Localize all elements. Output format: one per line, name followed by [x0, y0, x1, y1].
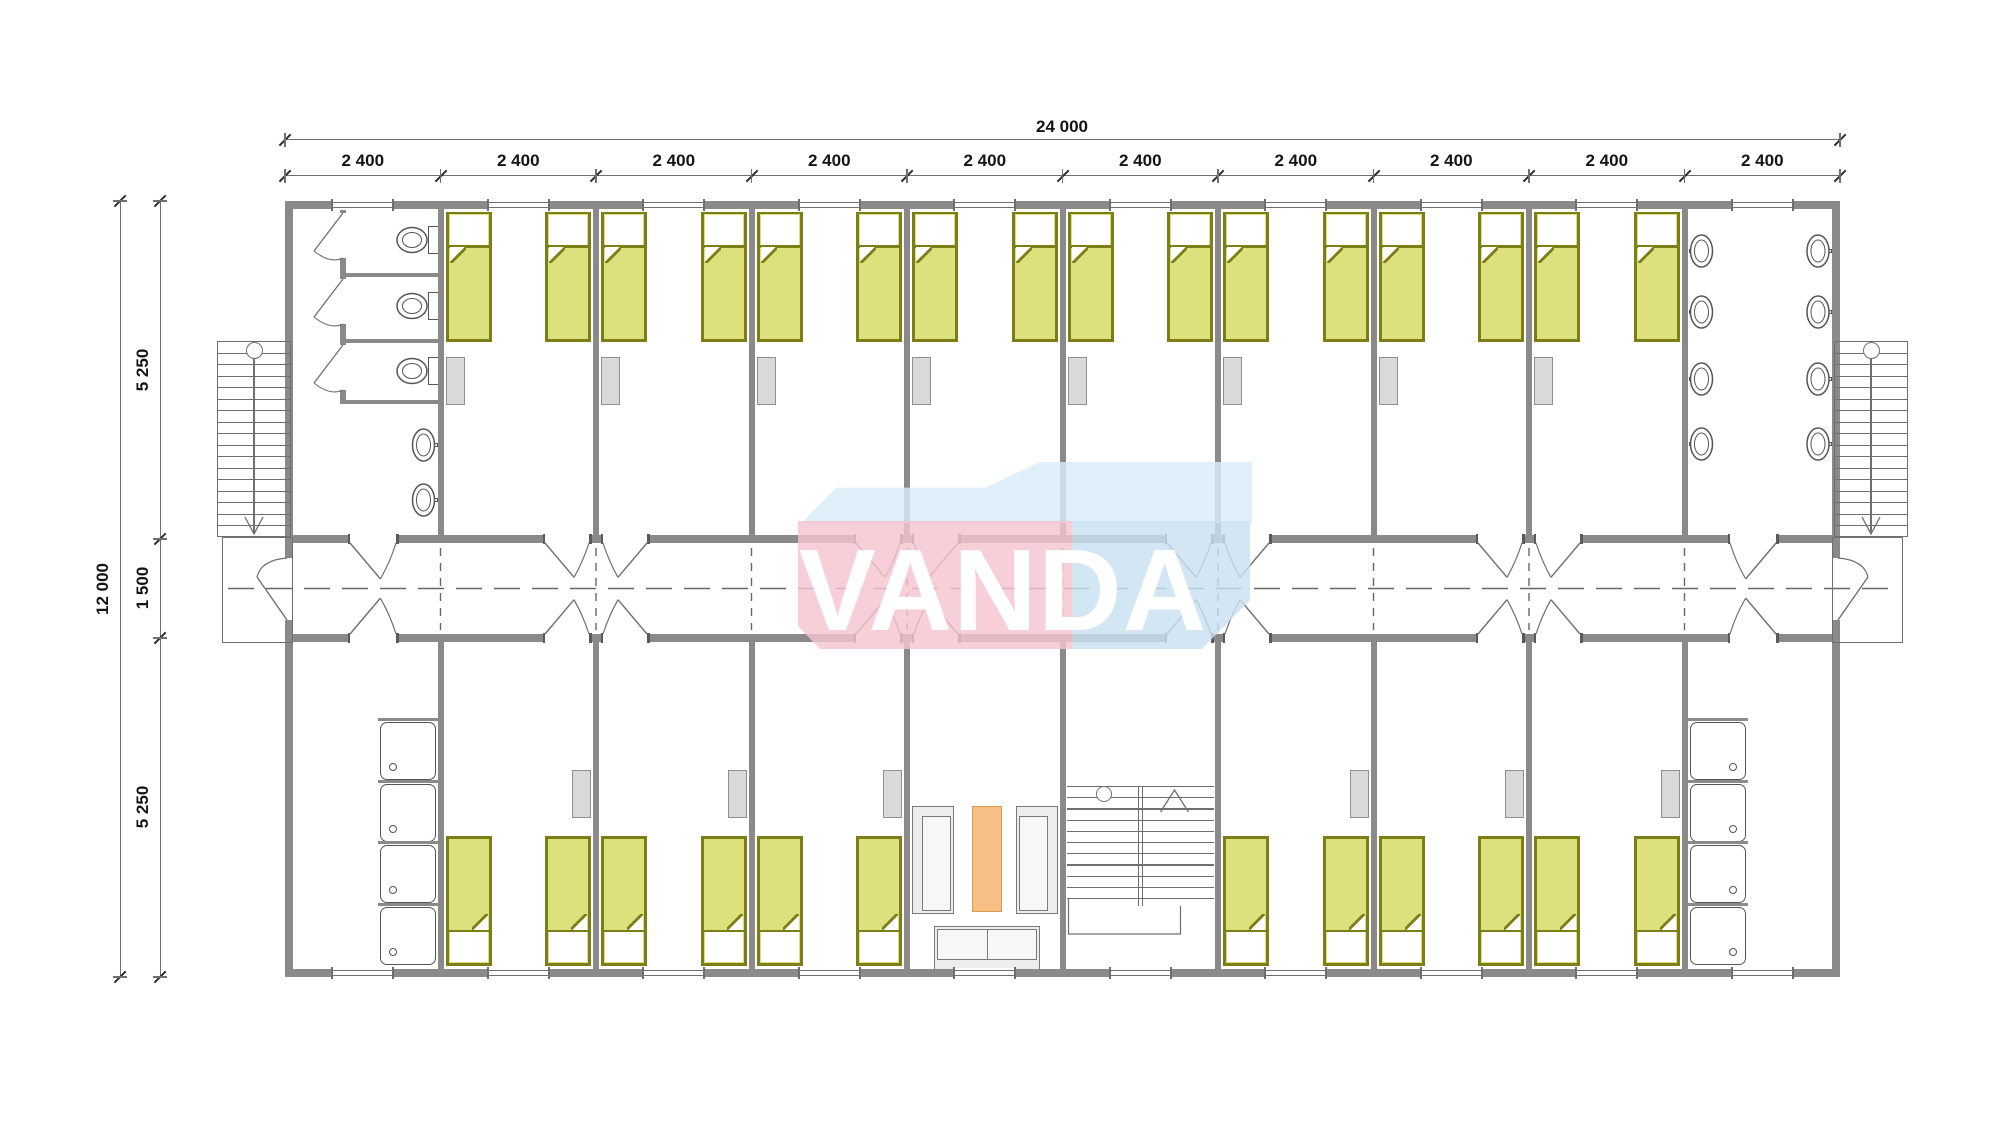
dimension-label-module: 2 400 [963, 151, 1006, 171]
door-swing-arc [885, 543, 900, 577]
basin-tap [1824, 310, 1832, 314]
window-jamb [331, 199, 333, 211]
window-line [1732, 207, 1792, 208]
partition-wall-top [1682, 209, 1688, 535]
dimension-tick-guide [1373, 169, 1374, 183]
wash-basin-inner [1695, 368, 1709, 390]
window-line [333, 970, 393, 971]
window-jamb [1481, 199, 1483, 211]
window-jamb [1420, 967, 1422, 979]
window-jamb [1420, 199, 1422, 211]
door-jamb [1776, 633, 1779, 643]
door-leaf [1240, 543, 1269, 577]
shower-partition [378, 780, 438, 783]
dimension-label-module: 2 400 [1430, 151, 1473, 171]
window-line [333, 975, 393, 976]
door-swing-arc [1196, 600, 1211, 634]
door-jamb [900, 534, 903, 544]
bed-fold [1405, 914, 1421, 930]
door-jamb [912, 633, 915, 643]
door-jamb [958, 633, 961, 643]
stall-door-opening [340, 345, 346, 390]
bed-fold [1482, 247, 1498, 263]
door-jamb [854, 633, 857, 643]
window-jamb [1575, 199, 1577, 211]
window-line [644, 970, 704, 971]
toilet-stall-partition [346, 339, 438, 343]
wash-basin-inner [1695, 433, 1709, 455]
watermark-text: VANDA [788, 536, 1218, 648]
wash-basin-inner [417, 489, 431, 511]
window-line [1110, 975, 1170, 976]
shower-tray [380, 722, 436, 780]
shower-tray [1690, 722, 1746, 780]
dimension-tick-guide [1217, 169, 1218, 183]
dimension-line-total-height [120, 201, 121, 977]
stair-divider [1138, 786, 1139, 906]
window-jamb [1170, 199, 1172, 211]
door-jamb [1580, 633, 1583, 643]
bed [856, 836, 902, 966]
partition-wall-top [749, 209, 755, 535]
partition-wall-bottom [593, 642, 599, 969]
door-swing-arc [885, 600, 900, 634]
shower-tray [380, 907, 436, 965]
door-leaf [545, 600, 574, 634]
sofa-seat [922, 816, 951, 911]
window-line [1421, 202, 1481, 203]
door-leaf [1167, 600, 1196, 634]
window-line [1421, 975, 1481, 976]
basin-tap [1689, 249, 1697, 253]
door-swing-arc [380, 598, 396, 634]
door-jamb [647, 633, 650, 643]
door-opening [350, 534, 396, 544]
window-line [955, 970, 1015, 971]
window-line [1577, 207, 1637, 208]
wardrobe [728, 770, 747, 818]
dimension-label-module: 2 400 [1274, 151, 1317, 171]
door-opening [545, 633, 589, 643]
window-line [1732, 202, 1792, 203]
bed-fold [916, 247, 932, 263]
wash-basin-inner [417, 434, 431, 456]
bed-pillow [1327, 215, 1365, 245]
window-jamb [859, 199, 861, 211]
window-jamb [1325, 199, 1327, 211]
stall-door-opening [340, 279, 346, 324]
door-leaf [1167, 543, 1196, 577]
bed-pillow [1072, 215, 1110, 245]
window-jamb [1109, 967, 1111, 979]
door-leaf [1240, 600, 1269, 634]
bed-fold [1383, 247, 1399, 263]
bed-fold [1660, 914, 1676, 930]
dimension-tick-guide [906, 169, 907, 183]
shower-drain [389, 825, 397, 833]
stair-tread [1067, 887, 1215, 888]
window-line [644, 207, 704, 208]
partition-wall-bottom [1060, 642, 1066, 969]
bed-pillow [1171, 215, 1209, 245]
dimension-label-module: 2 400 [652, 151, 695, 171]
bed [1323, 836, 1369, 966]
watermark-top-face [800, 462, 1252, 523]
bed [757, 836, 803, 966]
door-leaf [545, 543, 574, 577]
wc-bowl-inner [403, 364, 422, 379]
sofa [1016, 806, 1058, 914]
sofa [934, 926, 1040, 970]
bed-pillow [1227, 932, 1265, 962]
bed [446, 836, 492, 966]
stall-door-leaf [314, 345, 343, 383]
sofa [912, 806, 954, 914]
bed-fold [1072, 247, 1088, 263]
bed-fold [1327, 247, 1343, 263]
door-opening [350, 633, 396, 643]
partition-wall-bottom [1215, 642, 1221, 969]
bed-pillow [860, 932, 898, 962]
bed-fold [1249, 914, 1265, 930]
door-jamb [1580, 534, 1583, 544]
wc-bowl [397, 228, 427, 253]
partition-wall-top [438, 209, 444, 535]
dimension-label-module: 2 400 [341, 151, 384, 171]
door-swing-arc [1225, 543, 1240, 577]
door-leaf [1551, 543, 1580, 577]
door-jamb [1522, 633, 1525, 643]
door-swing-arc [1196, 543, 1211, 577]
bed-fold [472, 914, 488, 930]
dimension-line-bands [160, 201, 161, 977]
stair-direction-circle [1863, 342, 1880, 359]
dimension-tick-guide [113, 200, 127, 201]
partition-wall-top [904, 209, 910, 535]
door-swing-arc [1730, 543, 1746, 579]
partition-wall-bottom [438, 642, 444, 969]
dimension-tick-guide [153, 538, 167, 539]
door-jamb [1269, 633, 1272, 643]
partition-wall-bottom [904, 642, 910, 969]
door-swing-arc [1730, 598, 1746, 634]
window-jamb [487, 199, 489, 211]
stall-door-arc [314, 383, 343, 392]
door-swing-arc [914, 543, 929, 577]
door-jamb [543, 633, 546, 643]
dimension-label-module: 2 400 [497, 151, 540, 171]
door-jamb [589, 633, 592, 643]
door-leaf [1746, 543, 1776, 579]
wardrobe [883, 770, 902, 818]
wardrobe [572, 770, 591, 818]
bed-fold [1560, 914, 1576, 930]
bed [601, 212, 647, 342]
dimension-tick-guide [113, 976, 127, 977]
window-line [1577, 970, 1637, 971]
door-opening [856, 534, 900, 544]
door-jamb [1728, 534, 1731, 544]
window-line [955, 975, 1015, 976]
window-line [1732, 970, 1792, 971]
wardrobe [912, 357, 931, 405]
partition-wall-top [1526, 209, 1532, 535]
door-jamb [396, 534, 399, 544]
window-jamb [1014, 199, 1016, 211]
bed-pillow [705, 932, 743, 962]
dimension-tick-guide [1684, 169, 1685, 183]
window-jamb [331, 967, 333, 979]
door-opening [603, 633, 647, 643]
bed-pillow [1383, 215, 1421, 245]
bed [856, 212, 902, 342]
wash-basin-inner [1811, 301, 1825, 323]
bed-fold [1538, 247, 1554, 263]
door-leaf [350, 543, 380, 579]
dimension-tick-guide [153, 976, 167, 977]
window-line [799, 207, 859, 208]
door-jamb [348, 534, 351, 544]
shower-drain [1729, 948, 1737, 956]
sofa-seat [937, 929, 1037, 960]
window-jamb [548, 967, 550, 979]
window-line [488, 207, 548, 208]
door-opening [1167, 534, 1211, 544]
door-leaf [350, 598, 380, 634]
door-opening [545, 534, 589, 544]
stair-tread [1067, 876, 1215, 877]
shower-partition [1688, 718, 1748, 721]
partition-wall-bottom [1371, 642, 1377, 969]
basin-tap [1824, 442, 1832, 446]
window-jamb [1109, 199, 1111, 211]
door-jamb [1522, 534, 1525, 544]
window-jamb [548, 199, 550, 211]
bed [1012, 212, 1058, 342]
door-swing-arc [1536, 543, 1551, 577]
stall-door-leaf [314, 213, 343, 251]
wardrobe [1379, 357, 1398, 405]
dimension-label-total-width: 24 000 [1036, 117, 1088, 137]
partition-wall-top [1215, 209, 1221, 535]
shower-tray [1690, 845, 1746, 903]
window-jamb [1636, 967, 1638, 979]
door-jamb [854, 534, 857, 544]
dimension-tick-guide [284, 169, 285, 183]
bed [1167, 212, 1213, 342]
door-jamb [1476, 633, 1479, 643]
door-jamb [1534, 534, 1537, 544]
door-swing-arc [1507, 543, 1522, 577]
window-line [799, 202, 859, 203]
door-opening [1478, 534, 1522, 544]
wc-bowl-inner [403, 299, 422, 314]
bed [1634, 212, 1680, 342]
door-jamb [1534, 633, 1537, 643]
bed-fold [705, 247, 721, 263]
door-leaf [929, 543, 958, 577]
wardrobe [757, 357, 776, 405]
dimension-tick-guide [153, 637, 167, 638]
dimension-tick-guide [284, 133, 285, 147]
door-swing-arc [603, 600, 618, 634]
bed-pillow [1227, 215, 1265, 245]
basin-tap [1824, 249, 1832, 253]
window-line [333, 202, 393, 203]
door-jamb [1728, 633, 1731, 643]
door-jamb [601, 633, 604, 643]
window-line [644, 202, 704, 203]
bed-pillow [549, 215, 587, 245]
stair-tread [1067, 831, 1215, 832]
wc-bowl [397, 359, 427, 384]
door-opening [914, 534, 958, 544]
door-jamb [396, 633, 399, 643]
bed-fold [882, 914, 898, 930]
wardrobe [1068, 357, 1087, 405]
bed-pillow [1538, 215, 1576, 245]
bed-fold [783, 914, 799, 930]
door-opening [1536, 534, 1580, 544]
wash-basin-inner [1811, 368, 1825, 390]
door-jamb [900, 633, 903, 643]
door-opening [1167, 633, 1211, 643]
bed-pillow [1482, 215, 1520, 245]
dimension-label-band: 5 250 [133, 786, 153, 829]
door-swing-arc [380, 543, 396, 579]
bed [1223, 836, 1269, 966]
stair-tread [1067, 853, 1215, 854]
shower-tray [380, 845, 436, 903]
dimension-tick-guide [595, 169, 596, 183]
dimension-tick-guide [153, 200, 167, 201]
shower-tray [1690, 784, 1746, 842]
window-line [333, 207, 393, 208]
stall-door-arc [314, 317, 343, 326]
stall-door-arc [314, 251, 343, 260]
stair-center-line [253, 341, 254, 533]
bed-fold [1349, 914, 1365, 930]
bed-fold [605, 247, 621, 263]
bed [1223, 212, 1269, 342]
window-line [1577, 975, 1637, 976]
bed-pillow [549, 932, 587, 962]
door-jamb [1223, 633, 1226, 643]
wardrobe [601, 357, 620, 405]
window-jamb [798, 967, 800, 979]
window-jamb [1481, 967, 1483, 979]
sofa-seat [1019, 816, 1048, 911]
wash-basin-inner [1811, 240, 1825, 262]
door-jamb [1211, 633, 1214, 643]
bed-fold [761, 247, 777, 263]
dimension-tick-guide [1062, 169, 1063, 183]
bed-pillow [1638, 215, 1676, 245]
window-line [1266, 975, 1326, 976]
stall-door-leaf [314, 279, 343, 317]
bed-fold [1171, 247, 1187, 263]
stair-tread [1067, 864, 1215, 865]
window-line [1421, 207, 1481, 208]
window-jamb [1731, 199, 1733, 211]
window-jamb [703, 199, 705, 211]
bed [912, 212, 958, 342]
dimension-tick-guide [1528, 169, 1529, 183]
door-leaf [929, 600, 958, 634]
wash-basin-inner [1695, 240, 1709, 262]
toilet-stall-partition [346, 273, 438, 277]
stair-tread [1067, 808, 1215, 809]
door-swing-arc [914, 600, 929, 634]
door-opening [1225, 633, 1269, 643]
window-line [1110, 970, 1170, 971]
window-line [799, 970, 859, 971]
bed [1323, 212, 1369, 342]
shower-partition [378, 841, 438, 844]
stair-tread [1067, 842, 1215, 843]
window-jamb [953, 967, 955, 979]
door-leaf [1746, 598, 1776, 634]
floor-plan: 24 0002 4002 4002 4002 4002 4002 4002 40… [0, 0, 2000, 1131]
bed [1068, 212, 1114, 342]
basin-tap [1689, 442, 1697, 446]
shower-tray [380, 784, 436, 842]
bed [1634, 836, 1680, 966]
door-jamb [348, 633, 351, 643]
partition-wall-top [1371, 209, 1377, 535]
door-jamb [1211, 534, 1214, 544]
bed-fold [1638, 247, 1654, 263]
door-jamb [1776, 534, 1779, 544]
partition-wall-bottom [1682, 642, 1688, 969]
corridor-wall-bottom [293, 634, 1832, 642]
dimension-tick-guide [1839, 169, 1840, 183]
bed [1379, 212, 1425, 342]
bed [757, 212, 803, 342]
bed [545, 836, 591, 966]
door-jamb [1269, 534, 1272, 544]
partition-wall-bottom [1526, 642, 1532, 969]
door-leaf [856, 543, 885, 577]
door-swing-arc [1225, 600, 1240, 634]
dimension-label-module: 2 400 [1741, 151, 1784, 171]
bed-pillow [450, 932, 488, 962]
partition-wall-top [593, 209, 599, 535]
wash-basin-inner [1811, 433, 1825, 455]
bed-pillow [450, 215, 488, 245]
window-line [1732, 975, 1792, 976]
window-jamb [392, 967, 394, 979]
bed-fold [549, 247, 565, 263]
dimension-label-module: 2 400 [1585, 151, 1628, 171]
bed-fold [450, 247, 466, 263]
stall-door-opening [340, 213, 346, 258]
wardrobe [1505, 770, 1524, 818]
bed [446, 212, 492, 342]
stair-tread [1067, 786, 1215, 787]
window-jamb [1170, 967, 1172, 979]
basin-tap [430, 498, 438, 502]
bed-pillow [860, 215, 898, 245]
window-jamb [859, 967, 861, 979]
door-leaf [618, 543, 647, 577]
basin-tap [1824, 377, 1832, 381]
window-line [1110, 207, 1170, 208]
stair-direction-circle [246, 342, 263, 359]
shower-tray [1690, 907, 1746, 965]
entry-landing-left [222, 537, 293, 643]
shower-partition [378, 903, 438, 906]
